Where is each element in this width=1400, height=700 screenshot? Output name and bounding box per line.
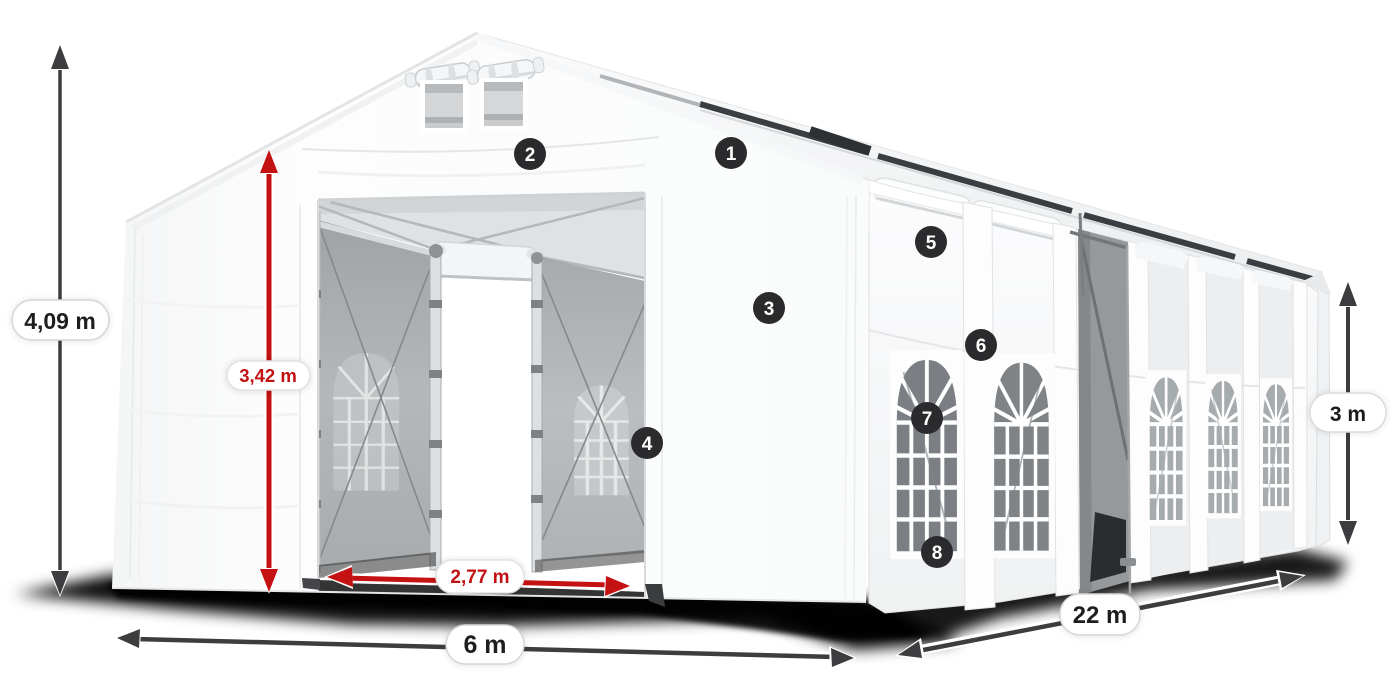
svg-text:3,42 m: 3,42 m bbox=[239, 365, 297, 386]
svg-text:5: 5 bbox=[926, 233, 937, 254]
svg-text:2,77 m: 2,77 m bbox=[450, 567, 509, 588]
svg-text:7: 7 bbox=[922, 409, 933, 430]
svg-text:4,09 m: 4,09 m bbox=[24, 308, 96, 334]
svg-text:8: 8 bbox=[932, 543, 943, 564]
svg-text:22 m: 22 m bbox=[1073, 602, 1128, 629]
svg-text:2: 2 bbox=[525, 145, 536, 166]
svg-text:1: 1 bbox=[726, 144, 737, 165]
svg-text:3: 3 bbox=[764, 299, 775, 320]
svg-text:6: 6 bbox=[976, 336, 987, 357]
svg-text:4: 4 bbox=[642, 434, 653, 455]
svg-text:6 m: 6 m bbox=[463, 631, 506, 659]
svg-text:3 m: 3 m bbox=[1330, 403, 1366, 426]
